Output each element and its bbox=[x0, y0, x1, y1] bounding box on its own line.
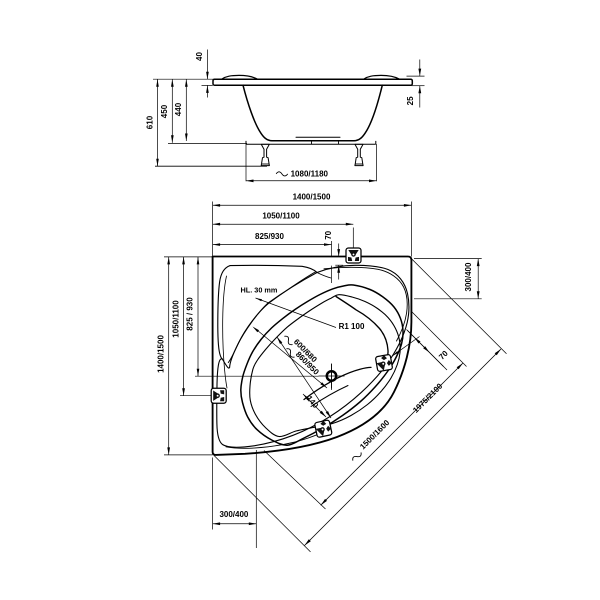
svg-text:40: 40 bbox=[195, 52, 204, 61]
svg-text:300/400: 300/400 bbox=[219, 510, 248, 519]
svg-text:300/400: 300/400 bbox=[464, 262, 473, 291]
svg-text:1050/1100: 1050/1100 bbox=[262, 212, 300, 221]
svg-text:825/930: 825/930 bbox=[255, 232, 284, 241]
svg-text:825 / 930: 825 / 930 bbox=[186, 297, 195, 331]
svg-text:440: 440 bbox=[174, 102, 183, 116]
svg-text:R1 100: R1 100 bbox=[339, 322, 365, 331]
svg-text:1400/1500: 1400/1500 bbox=[156, 335, 165, 373]
svg-text:1400/1500: 1400/1500 bbox=[293, 192, 331, 201]
svg-text:1080/1180: 1080/1180 bbox=[291, 169, 329, 178]
svg-text:HL. 30 mm: HL. 30 mm bbox=[241, 285, 278, 294]
svg-text:25: 25 bbox=[406, 96, 415, 105]
svg-text:450: 450 bbox=[160, 104, 169, 118]
svg-text:610: 610 bbox=[145, 115, 154, 129]
svg-text:70: 70 bbox=[324, 230, 333, 239]
svg-text:1050/1100: 1050/1100 bbox=[171, 300, 180, 338]
